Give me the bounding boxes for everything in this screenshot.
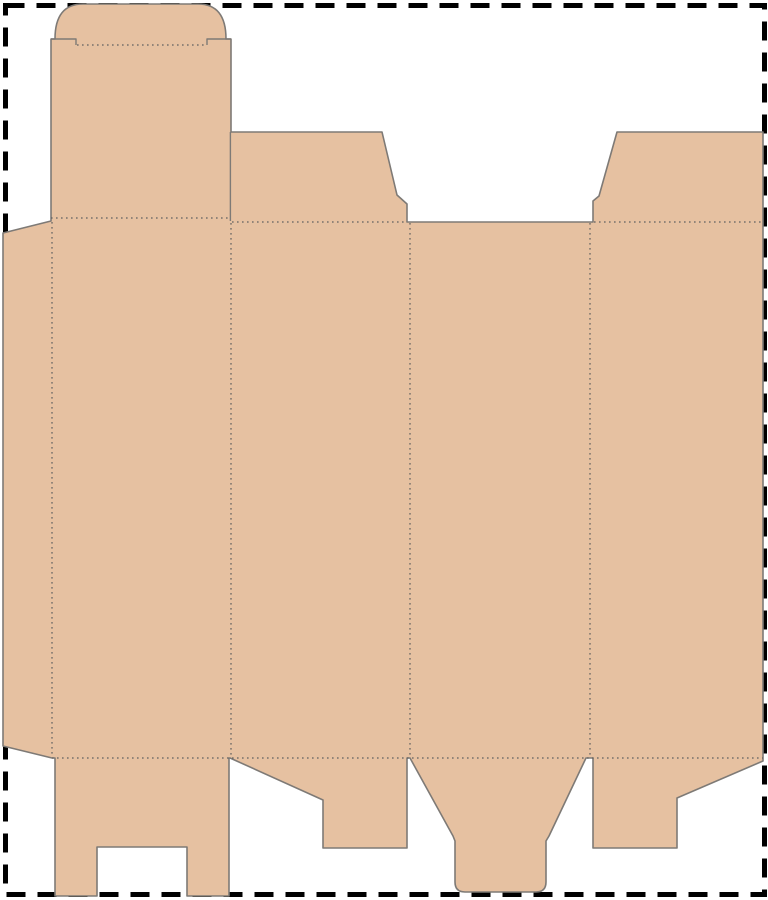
carton-dieline-drawing xyxy=(0,0,768,900)
dieline-sheet xyxy=(0,0,768,900)
dieline-blank-outline xyxy=(3,4,763,896)
